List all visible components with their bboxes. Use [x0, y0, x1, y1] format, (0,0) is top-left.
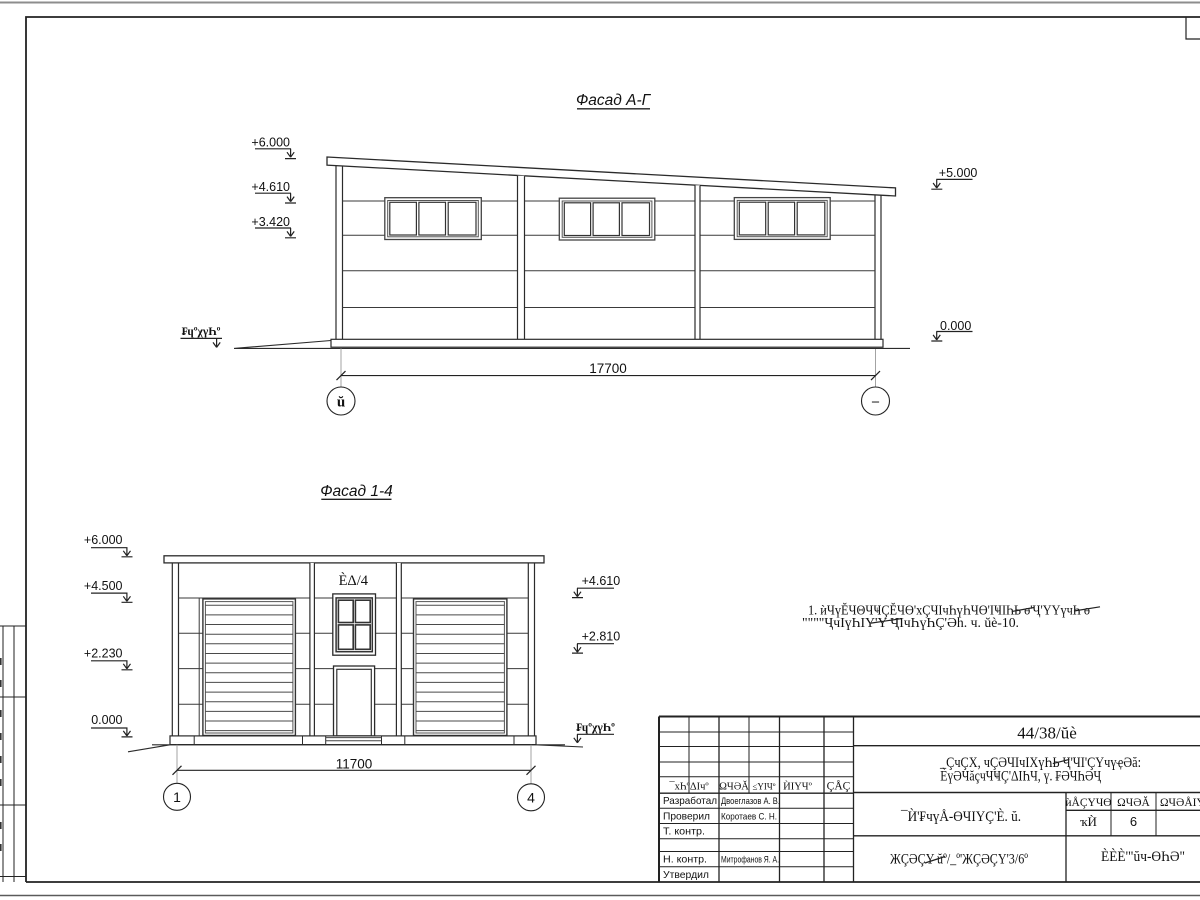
svg-text:Митрофанов Я. А.: Митрофанов Я. А.: [721, 855, 779, 865]
svg-text:₣ɥºχγҺº: ₣ɥºχγҺº: [576, 722, 615, 734]
svg-text:""""ҶчΙүҺΙΥ'Υ ҶΙчҺүҺÇ'Әh. ч. ŭ: """"ҶчΙүҺΙΥ'Υ ҶΙчҺүҺÇ'Әh. ч. ŭè-10.: [802, 616, 1019, 631]
svg-text:+3.420: +3.420: [251, 215, 290, 229]
svg-text:+4.610: +4.610: [251, 180, 290, 194]
svg-text:ΩЧӘÅΙΥ: ΩЧӘÅΙΥ: [1160, 795, 1200, 809]
svg-text:+5.000: +5.000: [939, 166, 978, 180]
svg-text:+4.610: +4.610: [582, 574, 621, 588]
svg-text:ѝÅÇΥЧӨ: ѝÅÇΥЧӨ: [1065, 795, 1111, 809]
svg-text:ÈүӘЧăçчЧҸÇ'ΔΙҺЧ, ү. ₣ӘЧҺӘҶ: ÈүӘЧăçчЧҸÇ'ΔΙҺЧ, ү. ₣ӘЧҺӘҶ: [940, 768, 1101, 785]
svg-text:ҡЍ: ҡЍ: [1080, 814, 1097, 829]
svg-text:₣ɥºχγҺº: ₣ɥºχγҺº: [182, 326, 221, 338]
svg-text:Разработал: Разработал: [663, 795, 717, 807]
svg-text:ЍΙΥЧº: ЍΙΥЧº: [783, 781, 812, 793]
svg-text:Коротаев С. Н.: Коротаев С. Н.: [721, 811, 777, 822]
svg-text:44/38/ŭè: 44/38/ŭè: [1017, 724, 1077, 743]
svg-text:17700: 17700: [589, 361, 627, 376]
svg-text:+2.230: +2.230: [84, 647, 123, 661]
svg-text:ŭ: ŭ: [337, 395, 345, 411]
svg-text:ÈΔ/4: ÈΔ/4: [339, 572, 369, 589]
svg-text:Фасад 1-4: Фасад 1-4: [320, 483, 393, 500]
svg-text:+2.810: +2.810: [582, 630, 621, 644]
svg-text:–: –: [871, 394, 880, 409]
svg-text:1: 1: [173, 789, 181, 805]
svg-text:¯хҺºΔΙчº: ¯хҺºΔΙчº: [668, 782, 709, 793]
svg-text:Т. контр.: Т. контр.: [663, 826, 705, 838]
svg-text:≤ΥΙЧº: ≤ΥΙЧº: [752, 782, 775, 792]
svg-text:6: 6: [1130, 814, 1137, 829]
svg-text:Н. контр.: Н. контр.: [663, 854, 707, 866]
svg-text:¯Ѝ'₣чүÅ-ӨЧΙΥÇ'È. ŭ.: ¯Ѝ'₣чүÅ-ӨЧΙΥÇ'È. ŭ.: [900, 808, 1021, 825]
svg-text:+6.000: +6.000: [251, 136, 290, 150]
svg-text:Утвердил: Утвердил: [663, 869, 709, 881]
svg-text:Двоеглазов А. В.: Двоеглазов А. В.: [721, 796, 780, 807]
svg-text:4: 4: [527, 789, 535, 805]
svg-text:ΩЧӘĂ: ΩЧӘĂ: [719, 781, 749, 793]
svg-text:Проверил: Проверил: [663, 810, 710, 822]
svg-text:ÇÅÇ: ÇÅÇ: [827, 779, 851, 793]
svg-text:ЖÇӘÇΥ ŭº/_º'ЖÇӘÇΥ'3/6º: ЖÇӘÇΥ ŭº/_º'ЖÇӘÇΥ'3/6º: [890, 852, 1028, 868]
svg-text:0.000: 0.000: [91, 713, 122, 727]
svg-text:Фасад А-Г: Фасад А-Г: [576, 92, 652, 109]
svg-text:+4.500: +4.500: [84, 579, 123, 593]
svg-text:11700: 11700: [336, 757, 373, 772]
svg-text:ÈÈÈ'"ŭч-ӨҺӘ": ÈÈÈ'"ŭч-ӨҺӘ": [1101, 848, 1185, 865]
svg-text:ΩЧӘĂ: ΩЧӘĂ: [1117, 795, 1150, 809]
svg-text:+6.000: +6.000: [84, 533, 123, 547]
